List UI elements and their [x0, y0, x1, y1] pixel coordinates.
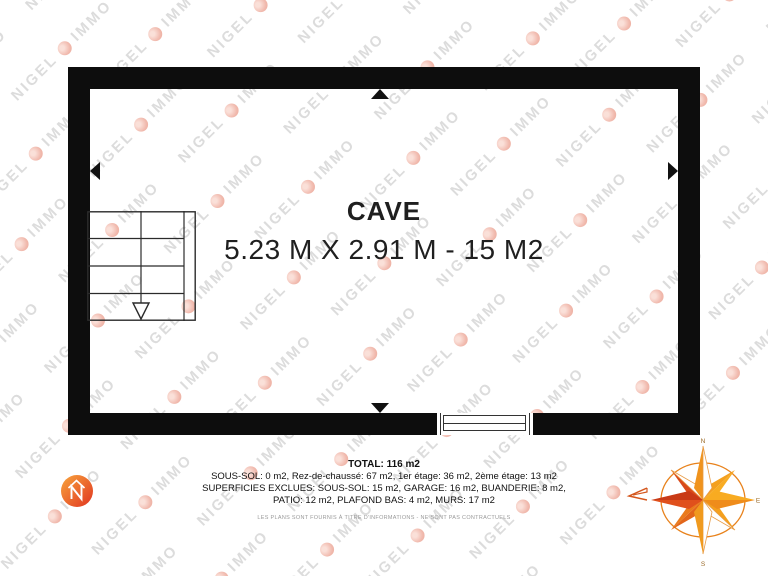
- compass-rose-icon: N E S: [645, 436, 761, 568]
- floorplan-page: NIGELIMMONIGELIMMONIGELIMMONIGELIMMONIGE…: [0, 0, 768, 576]
- window-frame: [443, 415, 526, 431]
- window-jamb-left: [440, 413, 441, 435]
- compass-east-label: E: [756, 498, 761, 505]
- wall-marker-bottom-icon: [371, 403, 389, 413]
- window-symbol: [437, 413, 533, 435]
- window-frame-midline: [444, 423, 525, 424]
- window-jamb-right: [529, 413, 530, 435]
- wall-marker-right-icon: [668, 162, 678, 180]
- compass-north-label: N: [701, 438, 706, 445]
- wall-marker-top-icon: [371, 89, 389, 99]
- stairs-down-icon: [87, 211, 196, 321]
- compass-south-label: S: [701, 561, 706, 568]
- wall-marker-left-icon: [90, 162, 100, 180]
- nigel-immo-house-n-icon: [59, 473, 95, 509]
